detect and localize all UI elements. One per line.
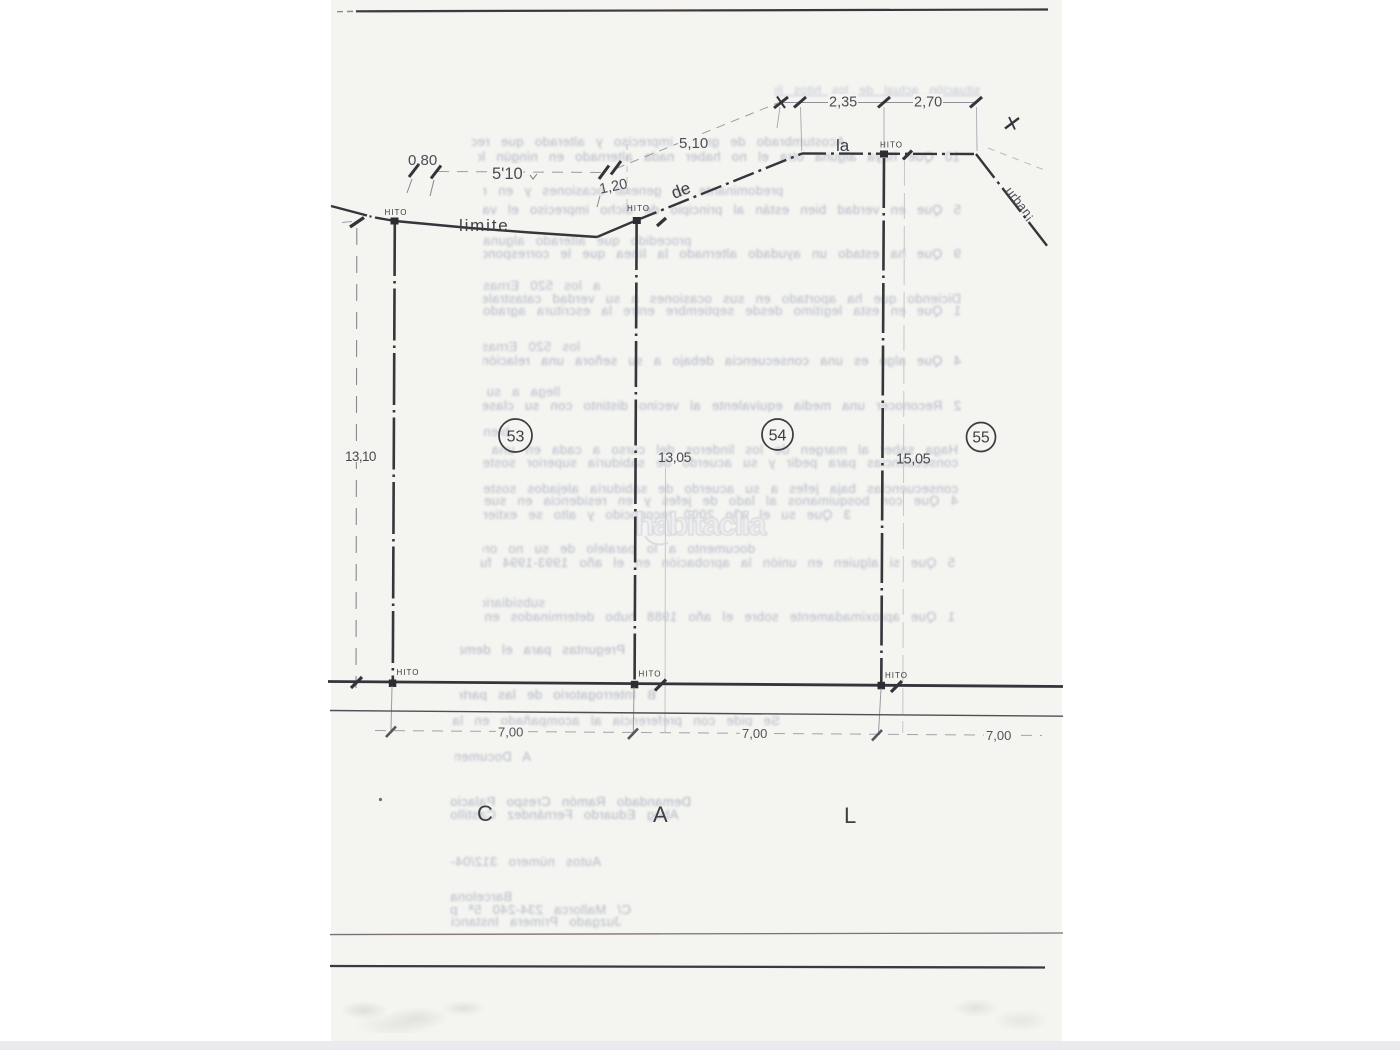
svg-text:54: 54 — [769, 428, 787, 445]
svg-text:HITO: HITO — [880, 141, 903, 150]
svg-text:7,00: 7,00 — [498, 725, 523, 740]
svg-text:A: A — [653, 802, 668, 827]
svg-text:HITO: HITO — [385, 208, 408, 217]
svg-text:13,10: 13,10 — [345, 449, 376, 464]
svg-text:2,35: 2,35 — [829, 95, 857, 111]
svg-text:7,00: 7,00 — [986, 728, 1011, 743]
svg-text:13,05: 13,05 — [658, 449, 692, 465]
svg-text:limite: limite — [459, 216, 509, 235]
svg-text:5'10: 5'10 — [492, 165, 523, 183]
svg-text:53: 53 — [507, 429, 525, 446]
svg-text:55: 55 — [972, 430, 989, 447]
svg-text:1,20: 1,20 — [598, 176, 629, 198]
svg-text:7,00: 7,00 — [742, 726, 767, 741]
svg-text:15,05: 15,05 — [896, 452, 931, 468]
svg-text:urban¡: urban¡ — [1003, 184, 1038, 223]
svg-text:HITO: HITO — [885, 671, 908, 680]
svg-text:HITO: HITO — [639, 670, 662, 679]
svg-text:HITO: HITO — [397, 668, 420, 677]
svg-text:0,80: 0,80 — [408, 152, 437, 169]
svg-text:2,70: 2,70 — [914, 95, 942, 111]
svg-text:L: L — [844, 803, 856, 828]
svg-text:de: de — [669, 178, 693, 203]
svg-text:C: C — [477, 801, 493, 826]
svg-text:5,10: 5,10 — [679, 135, 708, 152]
svg-text:HITO: HITO — [627, 204, 650, 213]
svg-text:la: la — [836, 136, 850, 155]
